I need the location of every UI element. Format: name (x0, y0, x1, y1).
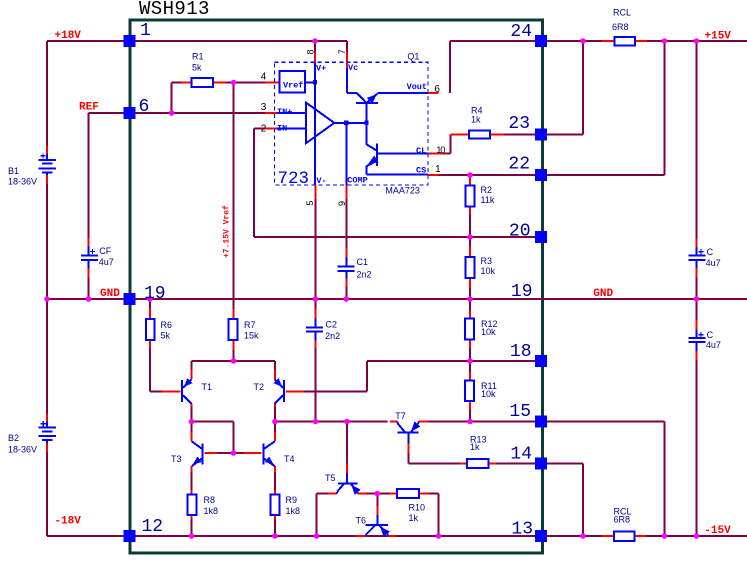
svg-text:4u7: 4u7 (706, 340, 721, 350)
svg-text:6R8: 6R8 (612, 22, 629, 32)
svg-text:B1: B1 (8, 166, 19, 176)
svg-text:R10: R10 (409, 503, 426, 513)
svg-text:CL: CL (416, 146, 426, 156)
svg-text:7: 7 (337, 49, 347, 54)
svg-text:15: 15 (509, 402, 531, 422)
svg-text:3: 3 (261, 102, 267, 113)
svg-text:GND: GND (593, 288, 613, 300)
svg-text:GND: GND (100, 288, 120, 300)
svg-text:15k: 15k (244, 331, 259, 341)
svg-text:4: 4 (261, 72, 267, 83)
svg-text:23: 23 (508, 114, 530, 134)
svg-text:9: 9 (337, 201, 347, 206)
svg-text:10k: 10k (481, 389, 496, 399)
svg-text:COMP: COMP (347, 175, 367, 185)
svg-text:6: 6 (139, 97, 150, 117)
svg-text:+18V: +18V (55, 30, 82, 42)
svg-text:14: 14 (510, 444, 532, 464)
svg-text:R7: R7 (244, 320, 256, 330)
svg-text:T7: T7 (395, 411, 406, 421)
svg-text:11k: 11k (481, 195, 495, 205)
svg-text:-18V: -18V (54, 515, 81, 527)
svg-text:T1: T1 (202, 382, 213, 392)
svg-text:Vc: Vc (348, 63, 358, 73)
svg-text:5: 5 (305, 201, 315, 206)
svg-text:R2: R2 (481, 185, 493, 195)
svg-text:C: C (707, 330, 714, 340)
svg-text:MAA723: MAA723 (385, 186, 420, 196)
svg-text:WSH913: WSH913 (139, 0, 210, 20)
svg-text:20: 20 (509, 222, 531, 242)
svg-text:2: 2 (261, 124, 267, 135)
svg-text:5k: 5k (161, 331, 171, 341)
svg-text:T2: T2 (254, 382, 265, 392)
svg-text:R9: R9 (286, 495, 298, 505)
svg-text:5k: 5k (192, 62, 202, 72)
svg-text:2n2: 2n2 (357, 270, 372, 280)
svg-text:C2: C2 (326, 320, 338, 330)
svg-text:C: C (707, 247, 714, 257)
svg-text:CF: CF (99, 246, 111, 256)
svg-text:19: 19 (511, 282, 533, 302)
svg-text:6: 6 (434, 84, 440, 95)
svg-text:2n2: 2n2 (325, 331, 340, 341)
svg-text:19: 19 (144, 284, 166, 304)
svg-text:6R8: 6R8 (614, 515, 631, 525)
svg-text:CS: CS (416, 165, 426, 175)
svg-text:R8: R8 (204, 495, 216, 505)
svg-text:V+: V+ (316, 63, 326, 73)
svg-text:T4: T4 (284, 454, 295, 464)
svg-text:T3: T3 (171, 454, 182, 464)
svg-text:R1: R1 (192, 51, 204, 61)
svg-text:+7.15V Vref: +7.15V Vref (223, 205, 232, 258)
svg-text:C1: C1 (357, 257, 369, 267)
svg-text:R6: R6 (161, 320, 173, 330)
svg-text:8: 8 (306, 49, 316, 54)
svg-text:22: 22 (508, 154, 530, 174)
svg-text:+15V: +15V (705, 30, 732, 42)
svg-text:1k: 1k (409, 513, 419, 523)
svg-text:V-: V- (316, 176, 326, 186)
svg-text:18: 18 (510, 342, 532, 362)
svg-text:B2: B2 (8, 433, 19, 443)
svg-text:13: 13 (511, 519, 533, 539)
svg-text:T5: T5 (325, 473, 336, 483)
svg-text:1k8: 1k8 (286, 506, 301, 516)
svg-text:4u7: 4u7 (99, 257, 114, 267)
svg-text:723: 723 (278, 169, 310, 189)
svg-text:Q1: Q1 (407, 52, 419, 62)
svg-text:1k: 1k (470, 442, 480, 452)
svg-text:Vout: Vout (407, 82, 427, 92)
svg-text:REF: REF (79, 102, 99, 114)
svg-text:1: 1 (140, 21, 151, 41)
svg-text:R3: R3 (481, 256, 493, 266)
svg-text:12: 12 (142, 517, 164, 537)
svg-text:24: 24 (510, 22, 532, 42)
svg-text:1k8: 1k8 (204, 506, 219, 516)
svg-text:1k: 1k (471, 115, 481, 125)
svg-text:10k: 10k (481, 327, 496, 337)
svg-text:-15V: -15V (704, 525, 731, 537)
svg-text:18-36V: 18-36V (8, 445, 37, 455)
svg-text:IN+: IN+ (277, 107, 292, 117)
svg-text:1: 1 (435, 164, 441, 175)
svg-text:4u7: 4u7 (706, 258, 721, 268)
svg-text:IN-: IN- (277, 123, 292, 133)
svg-text:10: 10 (436, 145, 445, 156)
svg-text:RCL: RCL (613, 7, 631, 17)
svg-text:18-36V: 18-36V (8, 176, 37, 186)
svg-text:T6: T6 (356, 516, 367, 526)
svg-text:10k: 10k (481, 266, 496, 276)
svg-text:Vref: Vref (283, 80, 303, 90)
